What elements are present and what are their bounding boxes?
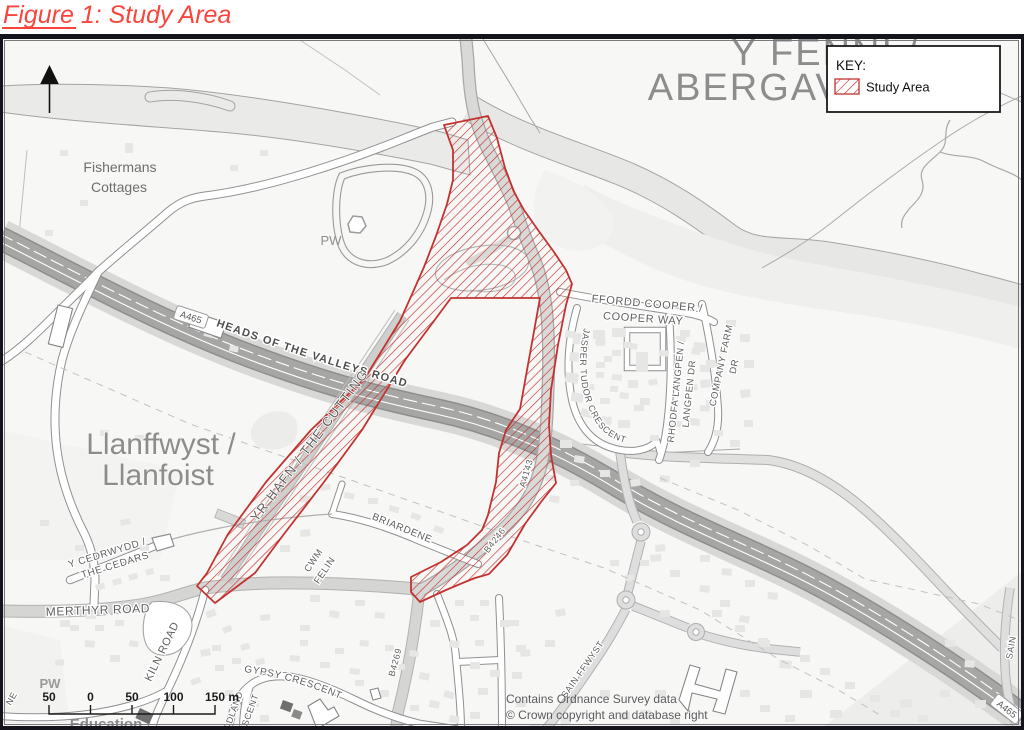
- svg-text:© Crown copyright and database: © Crown copyright and database right: [506, 708, 708, 722]
- svg-text:Fishermans: Fishermans: [83, 159, 156, 175]
- svg-text:Cottages: Cottages: [91, 179, 147, 195]
- svg-text:Study Area: Study Area: [866, 80, 930, 95]
- svg-text:PW: PW: [321, 233, 343, 248]
- svg-text:0: 0: [87, 690, 94, 704]
- svg-text:150 m: 150 m: [205, 690, 239, 704]
- svg-text:50: 50: [42, 690, 56, 704]
- svg-text:Llanfoist: Llanfoist: [102, 459, 214, 492]
- svg-text:KEY:: KEY:: [836, 58, 866, 73]
- svg-text:Contains Ordnance Survey data: Contains Ordnance Survey data: [506, 692, 677, 706]
- svg-text:PW: PW: [40, 676, 62, 691]
- svg-text:Llanffwyst /: Llanffwyst /: [86, 428, 236, 461]
- svg-text:100: 100: [163, 690, 183, 704]
- svg-text:50: 50: [125, 690, 139, 704]
